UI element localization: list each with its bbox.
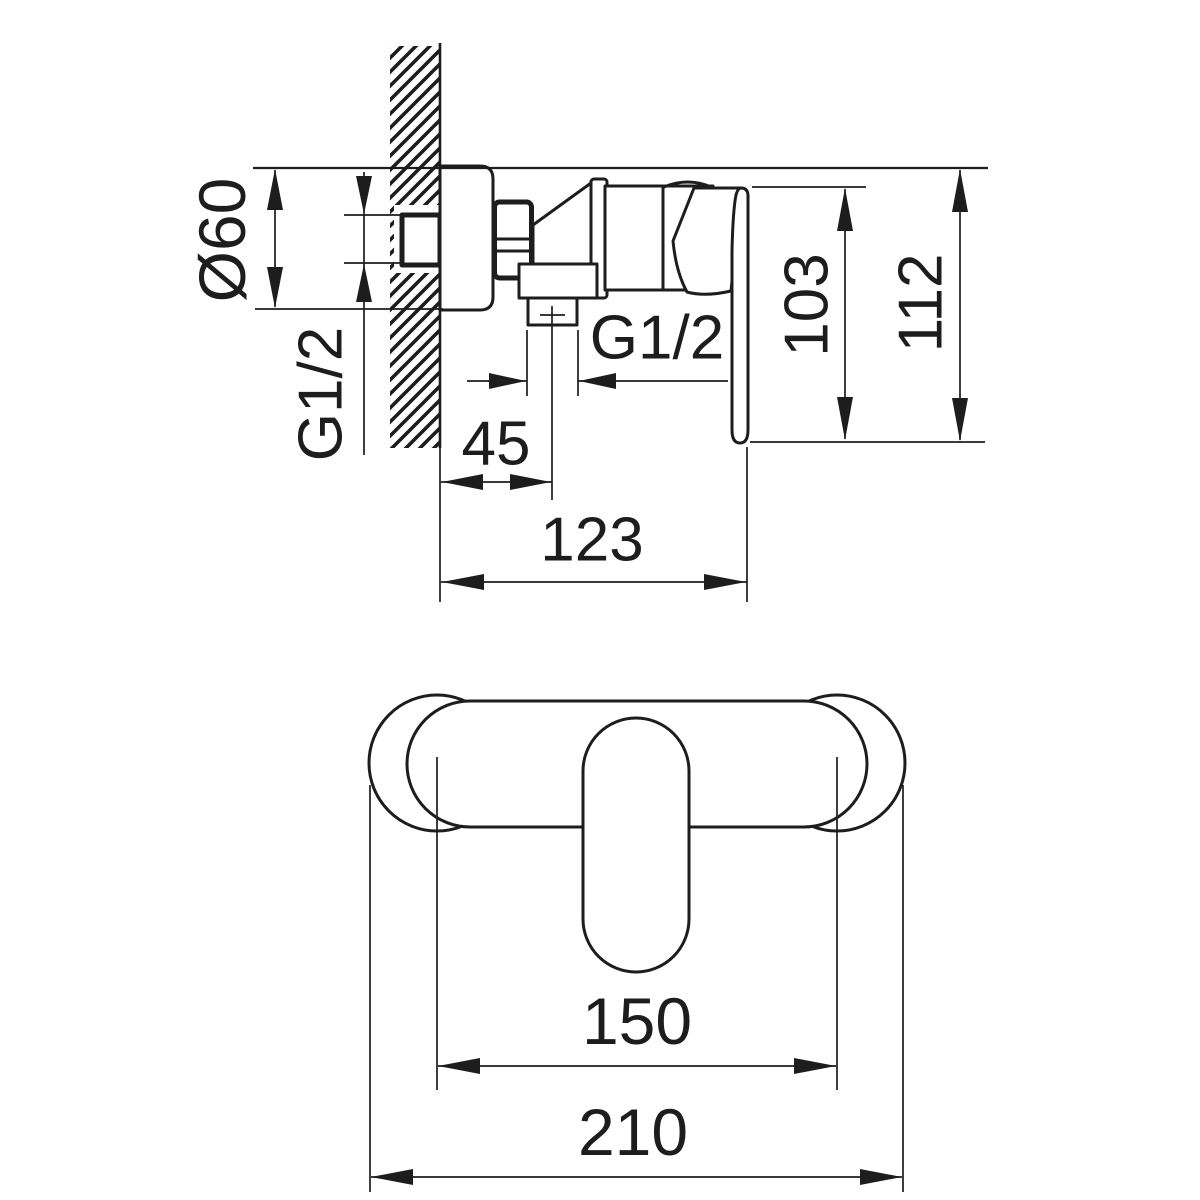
- arrow-down-icon: [267, 267, 283, 308]
- arrow-down-icon: [356, 176, 372, 214]
- lever-handle: [732, 188, 748, 443]
- dim-outlet-thread: G1/2: [467, 304, 728, 397]
- dim-label: 150: [582, 984, 692, 1058]
- supply-pipe-connection: [402, 215, 440, 265]
- technical-drawing: Ø60 G1/2 G1/2 45: [0, 0, 1200, 1200]
- dim-outlet-offset: 45: [440, 410, 552, 603]
- wall-flange: [440, 166, 493, 310]
- dim-wall-thread: G1/2: [287, 172, 403, 461]
- dim-label: Ø60: [185, 178, 259, 303]
- dim-handle-height: 103: [752, 187, 866, 440]
- side-view: Ø60 G1/2 G1/2 45: [185, 43, 988, 602]
- arrow-up-icon: [837, 188, 853, 231]
- dim-label: 123: [540, 506, 643, 575]
- arrow-down-icon: [952, 398, 968, 441]
- arrow-left-icon: [442, 574, 484, 590]
- dim-label: G1/2: [287, 327, 356, 461]
- dim-label: 45: [462, 410, 531, 479]
- top-view: 150 210: [369, 695, 905, 1192]
- dim-label: 103: [773, 253, 842, 356]
- drawing-svg: Ø60 G1/2 G1/2 45: [0, 0, 1200, 1200]
- lever-handle-plan: [583, 718, 689, 972]
- outlet-elbow: [519, 264, 597, 298]
- arrow-left-icon: [371, 1169, 413, 1185]
- arrow-right-icon: [704, 574, 746, 590]
- dim-label: 112: [887, 254, 956, 353]
- arrow-left-icon: [579, 373, 616, 389]
- arrow-right-icon: [489, 373, 526, 389]
- arrow-down-icon: [837, 397, 853, 440]
- arrow-up-icon: [952, 169, 968, 212]
- arrow-up-icon: [267, 169, 283, 210]
- dim-label: 210: [578, 1095, 688, 1169]
- dim-label: G1/2: [590, 304, 724, 373]
- arrow-left-icon: [438, 1058, 480, 1074]
- arrow-right-icon: [860, 1169, 902, 1185]
- arrow-right-icon: [794, 1058, 836, 1074]
- arrow-up-icon: [356, 264, 372, 302]
